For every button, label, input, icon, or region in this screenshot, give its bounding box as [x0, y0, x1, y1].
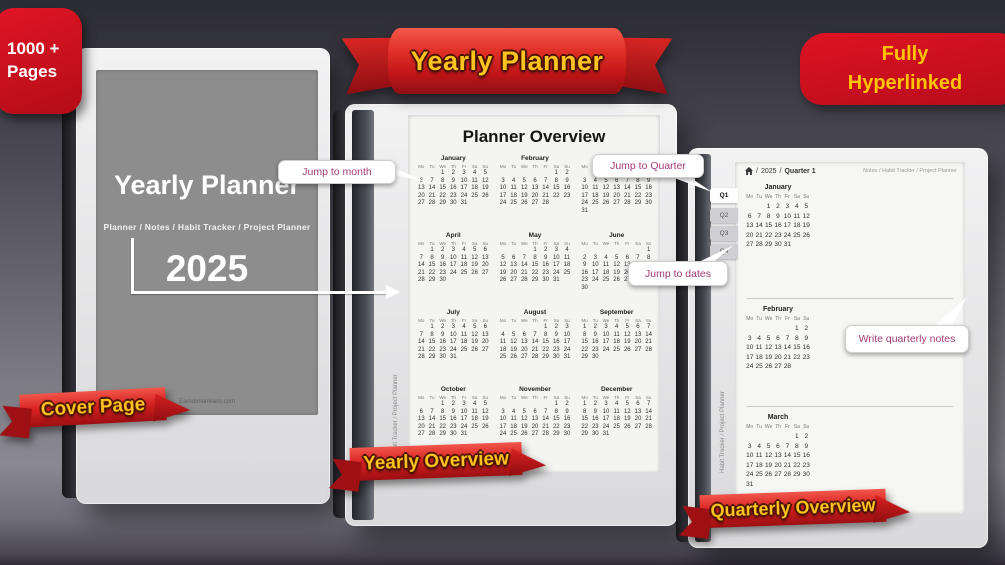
date-cell[interactable]: 7 [643, 324, 654, 332]
date-cell[interactable]: 17 [448, 339, 459, 347]
date-cell[interactable]: 20 [530, 193, 541, 201]
date-cell[interactable]: 7 [643, 401, 654, 409]
date-cell[interactable]: 6 [633, 324, 644, 332]
date-cell[interactable]: 13 [611, 185, 622, 193]
date-cell[interactable]: 28 [783, 470, 792, 480]
date-cell[interactable]: 19 [519, 193, 530, 201]
date-cell[interactable]: 9 [802, 334, 811, 344]
date-cell[interactable]: 27 [480, 270, 491, 278]
date-cell[interactable]: 13 [480, 332, 491, 340]
date-cell[interactable]: 11 [508, 416, 519, 424]
date-cell[interactable]: 16 [448, 416, 459, 424]
date-cell[interactable]: 24 [498, 200, 509, 208]
date-cell[interactable]: 5 [508, 332, 519, 340]
date-cell[interactable]: 11 [469, 409, 480, 417]
quarter-calendar-february[interactable]: FebruaryMoTuWeThFrSaSu123456789101112131… [745, 306, 811, 372]
date-cell[interactable]: 27 [519, 354, 530, 362]
date-cell[interactable]: 26 [508, 354, 519, 362]
date-cell[interactable]: 5 [764, 334, 773, 344]
date-cell[interactable]: 25 [601, 277, 612, 285]
date-cell[interactable]: 6 [611, 178, 622, 186]
date-cell[interactable]: 20 [611, 193, 622, 201]
date-cell[interactable]: 31 [551, 277, 562, 285]
date-cell[interactable]: 6 [530, 178, 541, 186]
date-cell[interactable]: 7 [622, 178, 633, 186]
date-cell[interactable]: 28 [540, 431, 551, 439]
date-cell[interactable]: 23 [590, 347, 601, 355]
date-cell[interactable]: 19 [469, 262, 480, 270]
date-cell[interactable]: 8 [579, 409, 590, 417]
date-cell[interactable]: 10 [783, 212, 792, 222]
date-cell[interactable]: 9 [448, 409, 459, 417]
date-cell[interactable]: 28 [416, 354, 427, 362]
quarterly-side-links[interactable]: Habit Tracker / Project Planner [720, 391, 726, 473]
date-cell[interactable]: 23 [551, 347, 562, 355]
date-cell[interactable]: 14 [427, 185, 438, 193]
date-cell[interactable]: 15 [427, 339, 438, 347]
date-cell[interactable]: 12 [519, 185, 530, 193]
date-cell[interactable]: 23 [437, 270, 448, 278]
date-cell[interactable]: 15 [437, 185, 448, 193]
date-cell[interactable]: 2 [437, 247, 448, 255]
date-cell[interactable]: 4 [459, 324, 470, 332]
date-cell[interactable]: 20 [416, 193, 427, 201]
date-cell[interactable]: 24 [551, 270, 562, 278]
date-cell[interactable]: 16 [437, 262, 448, 270]
date-cell[interactable]: 17 [448, 262, 459, 270]
date-cell[interactable]: 29 [792, 470, 801, 480]
date-cell[interactable]: 30 [437, 354, 448, 362]
date-cell[interactable]: 3 [498, 178, 509, 186]
date-cell[interactable]: 2 [448, 401, 459, 409]
date-cell[interactable]: 10 [551, 255, 562, 263]
date-cell[interactable]: 29 [427, 354, 438, 362]
date-cell[interactable]: 5 [622, 401, 633, 409]
date-cell[interactable]: 3 [551, 247, 562, 255]
date-cell[interactable]: 20 [773, 461, 782, 471]
date-cell[interactable]: 9 [590, 332, 601, 340]
date-cell[interactable]: 16 [540, 262, 551, 270]
date-cell[interactable]: 13 [519, 339, 530, 347]
date-cell[interactable]: 17 [459, 185, 470, 193]
date-cell[interactable]: 12 [469, 255, 480, 263]
date-cell[interactable]: 11 [754, 343, 763, 353]
date-cell[interactable]: 9 [437, 255, 448, 263]
date-cell[interactable]: 4 [562, 247, 573, 255]
date-cell[interactable]: 21 [754, 231, 763, 241]
date-cell[interactable]: 29 [437, 431, 448, 439]
date-cell[interactable]: 12 [519, 416, 530, 424]
date-cell[interactable]: 21 [530, 347, 541, 355]
date-cell[interactable]: 18 [459, 262, 470, 270]
date-cell[interactable]: 23 [579, 277, 590, 285]
date-cell[interactable]: 26 [469, 270, 480, 278]
date-cell[interactable]: 27 [530, 431, 541, 439]
date-cell[interactable]: 8 [437, 409, 448, 417]
date-cell[interactable]: 4 [601, 255, 612, 263]
date-cell[interactable]: 3 [579, 178, 590, 186]
month-title[interactable]: January [745, 184, 811, 191]
date-cell[interactable]: 2 [802, 324, 811, 334]
date-cell[interactable]: 16 [551, 339, 562, 347]
date-cell[interactable]: 6 [773, 334, 782, 344]
date-cell[interactable]: 1 [551, 401, 562, 409]
date-cell[interactable]: 27 [416, 200, 427, 208]
date-cell[interactable]: 30 [437, 277, 448, 285]
date-cell[interactable]: 29 [540, 354, 551, 362]
date-cell[interactable]: 29 [551, 431, 562, 439]
date-cell[interactable]: 18 [459, 339, 470, 347]
tab-q1[interactable]: Q1 [710, 188, 738, 203]
date-cell[interactable]: 24 [745, 470, 754, 480]
date-cell[interactable]: 18 [508, 424, 519, 432]
date-cell[interactable]: 12 [469, 332, 480, 340]
date-cell[interactable]: 27 [745, 240, 754, 250]
date-cell[interactable]: 15 [551, 185, 562, 193]
date-cell[interactable]: 9 [551, 332, 562, 340]
date-cell[interactable]: 27 [416, 431, 427, 439]
date-cell[interactable]: 4 [754, 334, 763, 344]
date-cell[interactable]: 2 [590, 324, 601, 332]
date-cell[interactable]: 22 [437, 193, 448, 201]
mini-calendar-july[interactable]: JulyMoTuWeThFrSaSu1234567891011121314151… [416, 309, 491, 386]
date-cell[interactable]: 21 [622, 193, 633, 201]
date-cell[interactable]: 6 [530, 409, 541, 417]
date-cell[interactable]: 22 [579, 347, 590, 355]
date-cell[interactable]: 10 [498, 185, 509, 193]
date-cell[interactable]: 7 [783, 442, 792, 452]
date-cell[interactable]: 23 [562, 424, 573, 432]
date-cell[interactable]: 5 [601, 178, 612, 186]
date-cell[interactable]: 23 [540, 270, 551, 278]
date-cell[interactable]: 7 [519, 255, 530, 263]
date-cell[interactable]: 3 [745, 334, 754, 344]
date-cell[interactable]: 22 [579, 424, 590, 432]
date-cell[interactable]: 20 [773, 353, 782, 363]
date-cell[interactable]: 13 [416, 185, 427, 193]
date-cell[interactable]: 16 [448, 185, 459, 193]
date-cell[interactable]: 9 [562, 178, 573, 186]
breadcrumb-year[interactable]: 2025 [761, 168, 777, 175]
date-cell[interactable]: 11 [754, 451, 763, 461]
date-cell[interactable]: 1 [551, 170, 562, 178]
date-cell[interactable]: 18 [601, 270, 612, 278]
date-cell[interactable]: 1 [764, 202, 773, 212]
date-cell[interactable]: 3 [745, 442, 754, 452]
date-cell[interactable]: 7 [427, 409, 438, 417]
date-cell[interactable]: 24 [601, 347, 612, 355]
date-cell[interactable]: 26 [519, 431, 530, 439]
date-cell[interactable]: 4 [469, 401, 480, 409]
date-cell[interactable]: 28 [643, 424, 654, 432]
date-cell[interactable]: 19 [764, 461, 773, 471]
date-cell[interactable]: 23 [590, 424, 601, 432]
date-cell[interactable]: 3 [448, 324, 459, 332]
date-cell[interactable]: 1 [427, 247, 438, 255]
date-cell[interactable]: 16 [590, 416, 601, 424]
date-cell[interactable]: 28 [643, 347, 654, 355]
date-cell[interactable]: 10 [448, 332, 459, 340]
date-cell[interactable]: 11 [498, 339, 509, 347]
mini-calendar-january[interactable]: JanuaryMoTuWeThFrSaSu1234567891011121314… [416, 155, 491, 232]
date-cell[interactable]: 5 [802, 202, 811, 212]
date-cell[interactable]: 1 [792, 324, 801, 334]
date-cell[interactable]: 14 [540, 185, 551, 193]
date-cell[interactable]: 3 [459, 170, 470, 178]
date-cell[interactable]: 25 [792, 231, 801, 241]
date-cell[interactable]: 19 [519, 424, 530, 432]
date-cell[interactable]: 16 [802, 343, 811, 353]
date-cell[interactable]: 2 [579, 255, 590, 263]
month-title[interactable]: October [416, 386, 491, 393]
date-cell[interactable]: 15 [792, 451, 801, 461]
mini-calendar-august[interactable]: AugustMoTuWeThFrSaSu12345678910111213141… [498, 309, 573, 386]
date-cell[interactable]: 10 [498, 416, 509, 424]
date-cell[interactable]: 7 [416, 255, 427, 263]
date-cell[interactable]: 5 [498, 255, 509, 263]
date-cell[interactable]: 10 [562, 332, 573, 340]
date-cell[interactable]: 2 [562, 401, 573, 409]
date-cell[interactable]: 14 [754, 221, 763, 231]
date-cell[interactable]: 11 [459, 332, 470, 340]
date-cell[interactable]: 19 [764, 353, 773, 363]
date-cell[interactable]: 30 [590, 431, 601, 439]
date-cell[interactable]: 23 [562, 193, 573, 201]
cover-nav-links[interactable]: Planner / Notes / Habit Tracker / Projec… [96, 222, 318, 232]
date-cell[interactable]: 8 [540, 332, 551, 340]
date-cell[interactable]: 4 [590, 178, 601, 186]
date-cell[interactable]: 2 [562, 170, 573, 178]
date-cell[interactable]: 15 [530, 262, 541, 270]
date-cell[interactable]: 5 [764, 442, 773, 452]
date-cell[interactable]: 7 [783, 334, 792, 344]
date-cell[interactable]: 17 [498, 424, 509, 432]
date-cell[interactable]: 31 [579, 208, 590, 216]
date-cell[interactable]: 17 [551, 262, 562, 270]
date-cell[interactable]: 31 [745, 480, 754, 490]
date-cell[interactable]: 20 [508, 270, 519, 278]
month-title[interactable]: December [579, 386, 654, 393]
date-cell[interactable]: 18 [498, 347, 509, 355]
date-cell[interactable]: 13 [633, 409, 644, 417]
date-cell[interactable]: 29 [764, 240, 773, 250]
date-cell[interactable]: 12 [480, 409, 491, 417]
date-cell[interactable]: 30 [590, 354, 601, 362]
date-cell[interactable]: 21 [783, 461, 792, 471]
date-cell[interactable]: 1 [579, 324, 590, 332]
date-cell[interactable]: 20 [745, 231, 754, 241]
month-title[interactable]: February [498, 155, 573, 162]
date-cell[interactable]: 17 [745, 461, 754, 471]
date-cell[interactable]: 16 [773, 221, 782, 231]
date-cell[interactable]: 30 [448, 431, 459, 439]
date-cell[interactable]: 24 [783, 231, 792, 241]
quarter-calendar-january[interactable]: JanuaryMoTuWeThFrSaSu1234567891011121314… [745, 184, 811, 250]
date-cell[interactable]: 16 [579, 270, 590, 278]
date-cell[interactable]: 27 [773, 362, 782, 372]
month-title[interactable]: April [416, 232, 491, 239]
date-cell[interactable]: 11 [792, 212, 801, 222]
date-cell[interactable]: 30 [773, 240, 782, 250]
date-cell[interactable]: 31 [601, 431, 612, 439]
date-cell[interactable]: 28 [783, 362, 792, 372]
mini-calendar-september[interactable]: SeptemberMoTuWeThFrSaSu12345678910111213… [579, 309, 654, 386]
date-cell[interactable]: 9 [579, 262, 590, 270]
date-cell[interactable]: 26 [480, 424, 491, 432]
date-cell[interactable]: 3 [448, 247, 459, 255]
date-cell[interactable]: 6 [519, 332, 530, 340]
date-cell[interactable]: 13 [745, 221, 754, 231]
date-cell[interactable]: 20 [480, 262, 491, 270]
month-title[interactable]: September [579, 309, 654, 316]
date-cell[interactable]: 25 [611, 347, 622, 355]
month-title[interactable]: August [498, 309, 573, 316]
date-cell[interactable]: 9 [437, 332, 448, 340]
date-cell[interactable]: 6 [480, 324, 491, 332]
date-cell[interactable]: 3 [590, 255, 601, 263]
date-cell[interactable]: 20 [633, 416, 644, 424]
date-cell[interactable]: 24 [498, 431, 509, 439]
date-cell[interactable]: 28 [530, 354, 541, 362]
date-cell[interactable]: 4 [498, 332, 509, 340]
quarterly-top-links[interactable]: Notes / Habit Tracker / Project Planner [863, 168, 957, 174]
home-icon[interactable] [745, 167, 753, 175]
date-cell[interactable]: 11 [469, 178, 480, 186]
date-cell[interactable]: 19 [622, 416, 633, 424]
date-cell[interactable]: 22 [540, 347, 551, 355]
date-cell[interactable]: 7 [416, 332, 427, 340]
date-cell[interactable]: 13 [773, 343, 782, 353]
date-cell[interactable]: 30 [562, 431, 573, 439]
date-cell[interactable]: 15 [579, 416, 590, 424]
date-cell[interactable]: 5 [469, 324, 480, 332]
date-cell[interactable]: 21 [427, 193, 438, 201]
date-cell[interactable]: 10 [601, 409, 612, 417]
date-cell[interactable]: 9 [562, 409, 573, 417]
date-cell[interactable]: 29 [437, 200, 448, 208]
date-cell[interactable]: 18 [469, 416, 480, 424]
date-cell[interactable]: 21 [783, 353, 792, 363]
date-cell[interactable]: 19 [802, 221, 811, 231]
date-cell[interactable]: 12 [622, 332, 633, 340]
date-cell[interactable]: 25 [611, 424, 622, 432]
date-cell[interactable]: 23 [448, 424, 459, 432]
date-cell[interactable]: 24 [745, 362, 754, 372]
date-cell[interactable]: 18 [611, 416, 622, 424]
date-cell[interactable]: 28 [540, 200, 551, 208]
date-cell[interactable]: 25 [508, 431, 519, 439]
date-cell[interactable]: 2 [437, 324, 448, 332]
date-cell[interactable]: 8 [792, 442, 801, 452]
date-cell[interactable]: 30 [579, 285, 590, 293]
date-cell[interactable]: 22 [530, 270, 541, 278]
date-cell[interactable]: 3 [562, 324, 573, 332]
date-cell[interactable]: 22 [792, 353, 801, 363]
date-cell[interactable]: 12 [764, 343, 773, 353]
date-cell[interactable]: 14 [783, 451, 792, 461]
date-cell[interactable]: 16 [590, 339, 601, 347]
date-cell[interactable]: 17 [590, 270, 601, 278]
date-cell[interactable]: 19 [480, 416, 491, 424]
date-cell[interactable]: 13 [633, 332, 644, 340]
date-cell[interactable]: 1 [579, 401, 590, 409]
date-cell[interactable]: 29 [530, 277, 541, 285]
date-cell[interactable]: 11 [601, 262, 612, 270]
date-cell[interactable]: 20 [530, 424, 541, 432]
date-cell[interactable]: 7 [754, 212, 763, 222]
date-cell[interactable]: 27 [508, 277, 519, 285]
date-cell[interactable]: 14 [416, 262, 427, 270]
date-cell[interactable]: 13 [508, 262, 519, 270]
month-title[interactable]: July [416, 309, 491, 316]
date-cell[interactable]: 11 [611, 332, 622, 340]
date-cell[interactable]: 4 [469, 170, 480, 178]
overview-side-links[interactable]: Habit Tracker / Project Planner [393, 374, 399, 456]
date-cell[interactable]: 15 [579, 339, 590, 347]
date-cell[interactable]: 7 [540, 178, 551, 186]
date-cell[interactable]: 23 [773, 231, 782, 241]
date-cell[interactable]: 3 [601, 401, 612, 409]
date-cell[interactable]: 17 [498, 193, 509, 201]
date-cell[interactable]: 1 [427, 324, 438, 332]
date-cell[interactable]: 27 [633, 347, 644, 355]
date-cell[interactable]: 16 [562, 416, 573, 424]
date-cell[interactable]: 31 [448, 354, 459, 362]
date-cell[interactable]: 7 [540, 409, 551, 417]
month-title[interactable]: January [416, 155, 491, 162]
date-cell[interactable]: 8 [551, 178, 562, 186]
date-cell[interactable]: 11 [508, 185, 519, 193]
date-cell[interactable]: 30 [540, 277, 551, 285]
date-cell[interactable]: 24 [601, 424, 612, 432]
date-cell[interactable]: 26 [611, 277, 622, 285]
date-cell[interactable]: 24 [448, 347, 459, 355]
date-cell[interactable]: 2 [448, 170, 459, 178]
date-cell[interactable]: 14 [519, 262, 530, 270]
date-cell[interactable]: 28 [519, 277, 530, 285]
date-cell[interactable]: 23 [437, 347, 448, 355]
date-cell[interactable]: 13 [480, 255, 491, 263]
date-cell[interactable]: 17 [601, 339, 612, 347]
date-cell[interactable]: 12 [498, 262, 509, 270]
date-cell[interactable]: 26 [622, 424, 633, 432]
date-cell[interactable]: 9 [590, 409, 601, 417]
date-cell[interactable]: 12 [622, 409, 633, 417]
date-cell[interactable]: 13 [530, 416, 541, 424]
date-cell[interactable]: 12 [480, 178, 491, 186]
date-cell[interactable]: 4 [754, 442, 763, 452]
date-cell[interactable]: 12 [601, 185, 612, 193]
date-cell[interactable]: 1 [792, 432, 801, 442]
date-cell[interactable]: 15 [437, 416, 448, 424]
date-cell[interactable]: 9 [540, 255, 551, 263]
date-cell[interactable]: 25 [459, 347, 470, 355]
date-cell[interactable]: 27 [773, 470, 782, 480]
date-cell[interactable]: 20 [480, 339, 491, 347]
date-cell[interactable]: 7 [427, 178, 438, 186]
date-cell[interactable]: 14 [643, 332, 654, 340]
date-cell[interactable]: 17 [745, 353, 754, 363]
date-cell[interactable]: 18 [508, 193, 519, 201]
date-cell[interactable]: 8 [427, 255, 438, 263]
date-cell[interactable]: 23 [802, 461, 811, 471]
date-cell[interactable]: 9 [643, 178, 654, 186]
date-cell[interactable]: 5 [519, 178, 530, 186]
date-cell[interactable]: 18 [754, 461, 763, 471]
mini-calendar-february[interactable]: FebruaryMoTuWeThFrSaSu123456789101112131… [498, 155, 573, 232]
date-cell[interactable]: 11 [590, 185, 601, 193]
date-cell[interactable]: 28 [622, 200, 633, 208]
